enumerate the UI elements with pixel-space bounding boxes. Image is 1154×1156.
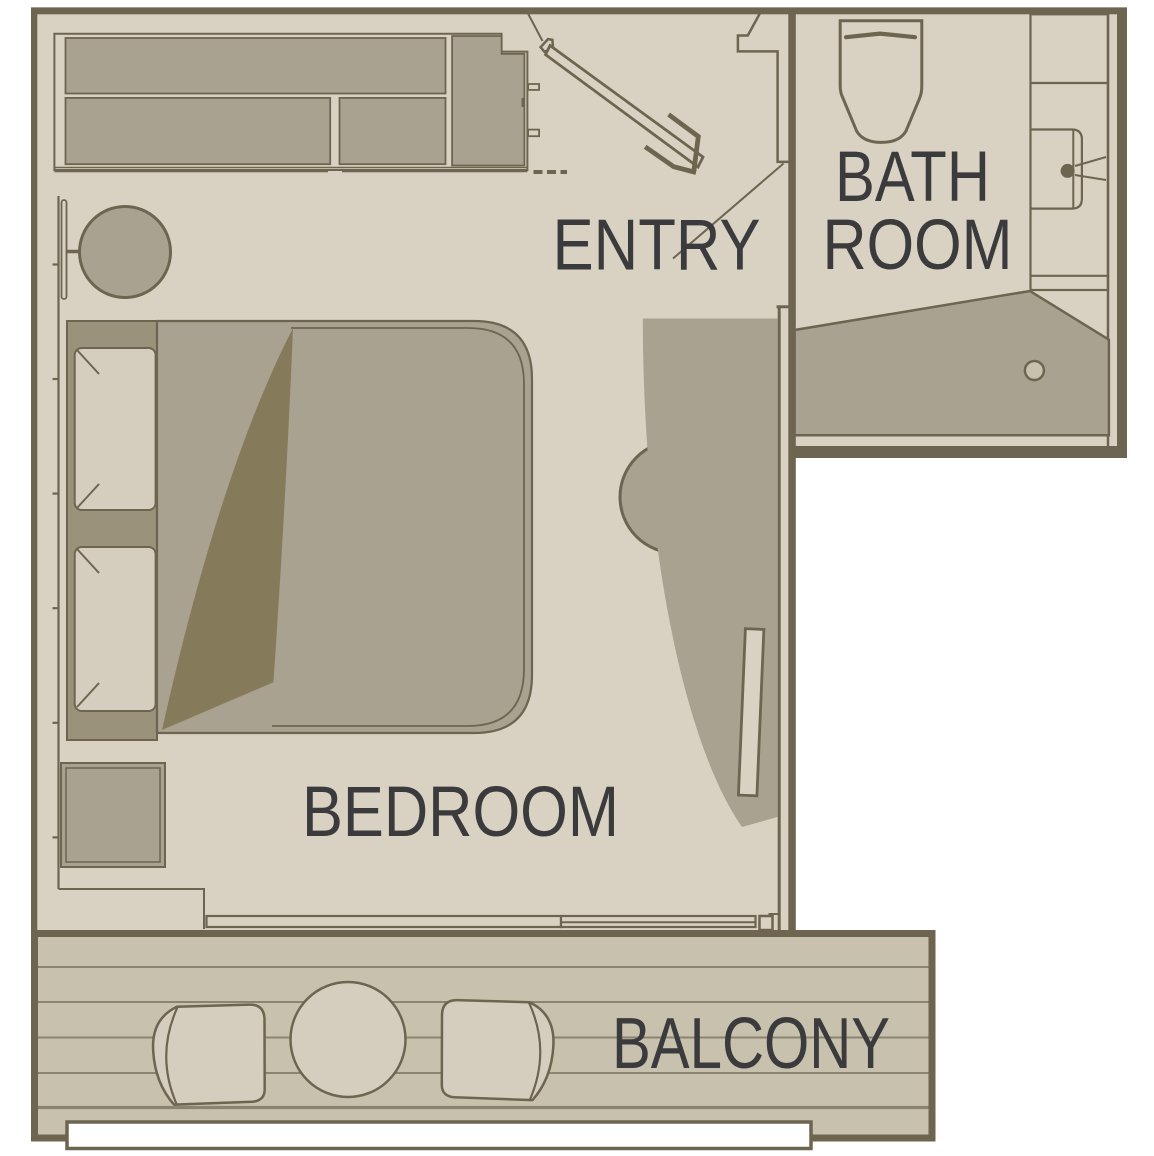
svg-text:ENTRY: ENTRY bbox=[553, 206, 761, 286]
svg-text:BALCONY: BALCONY bbox=[612, 1004, 890, 1084]
svg-text:ROOM: ROOM bbox=[823, 206, 1013, 285]
svg-text:BEDROOM: BEDROOM bbox=[302, 773, 619, 852]
